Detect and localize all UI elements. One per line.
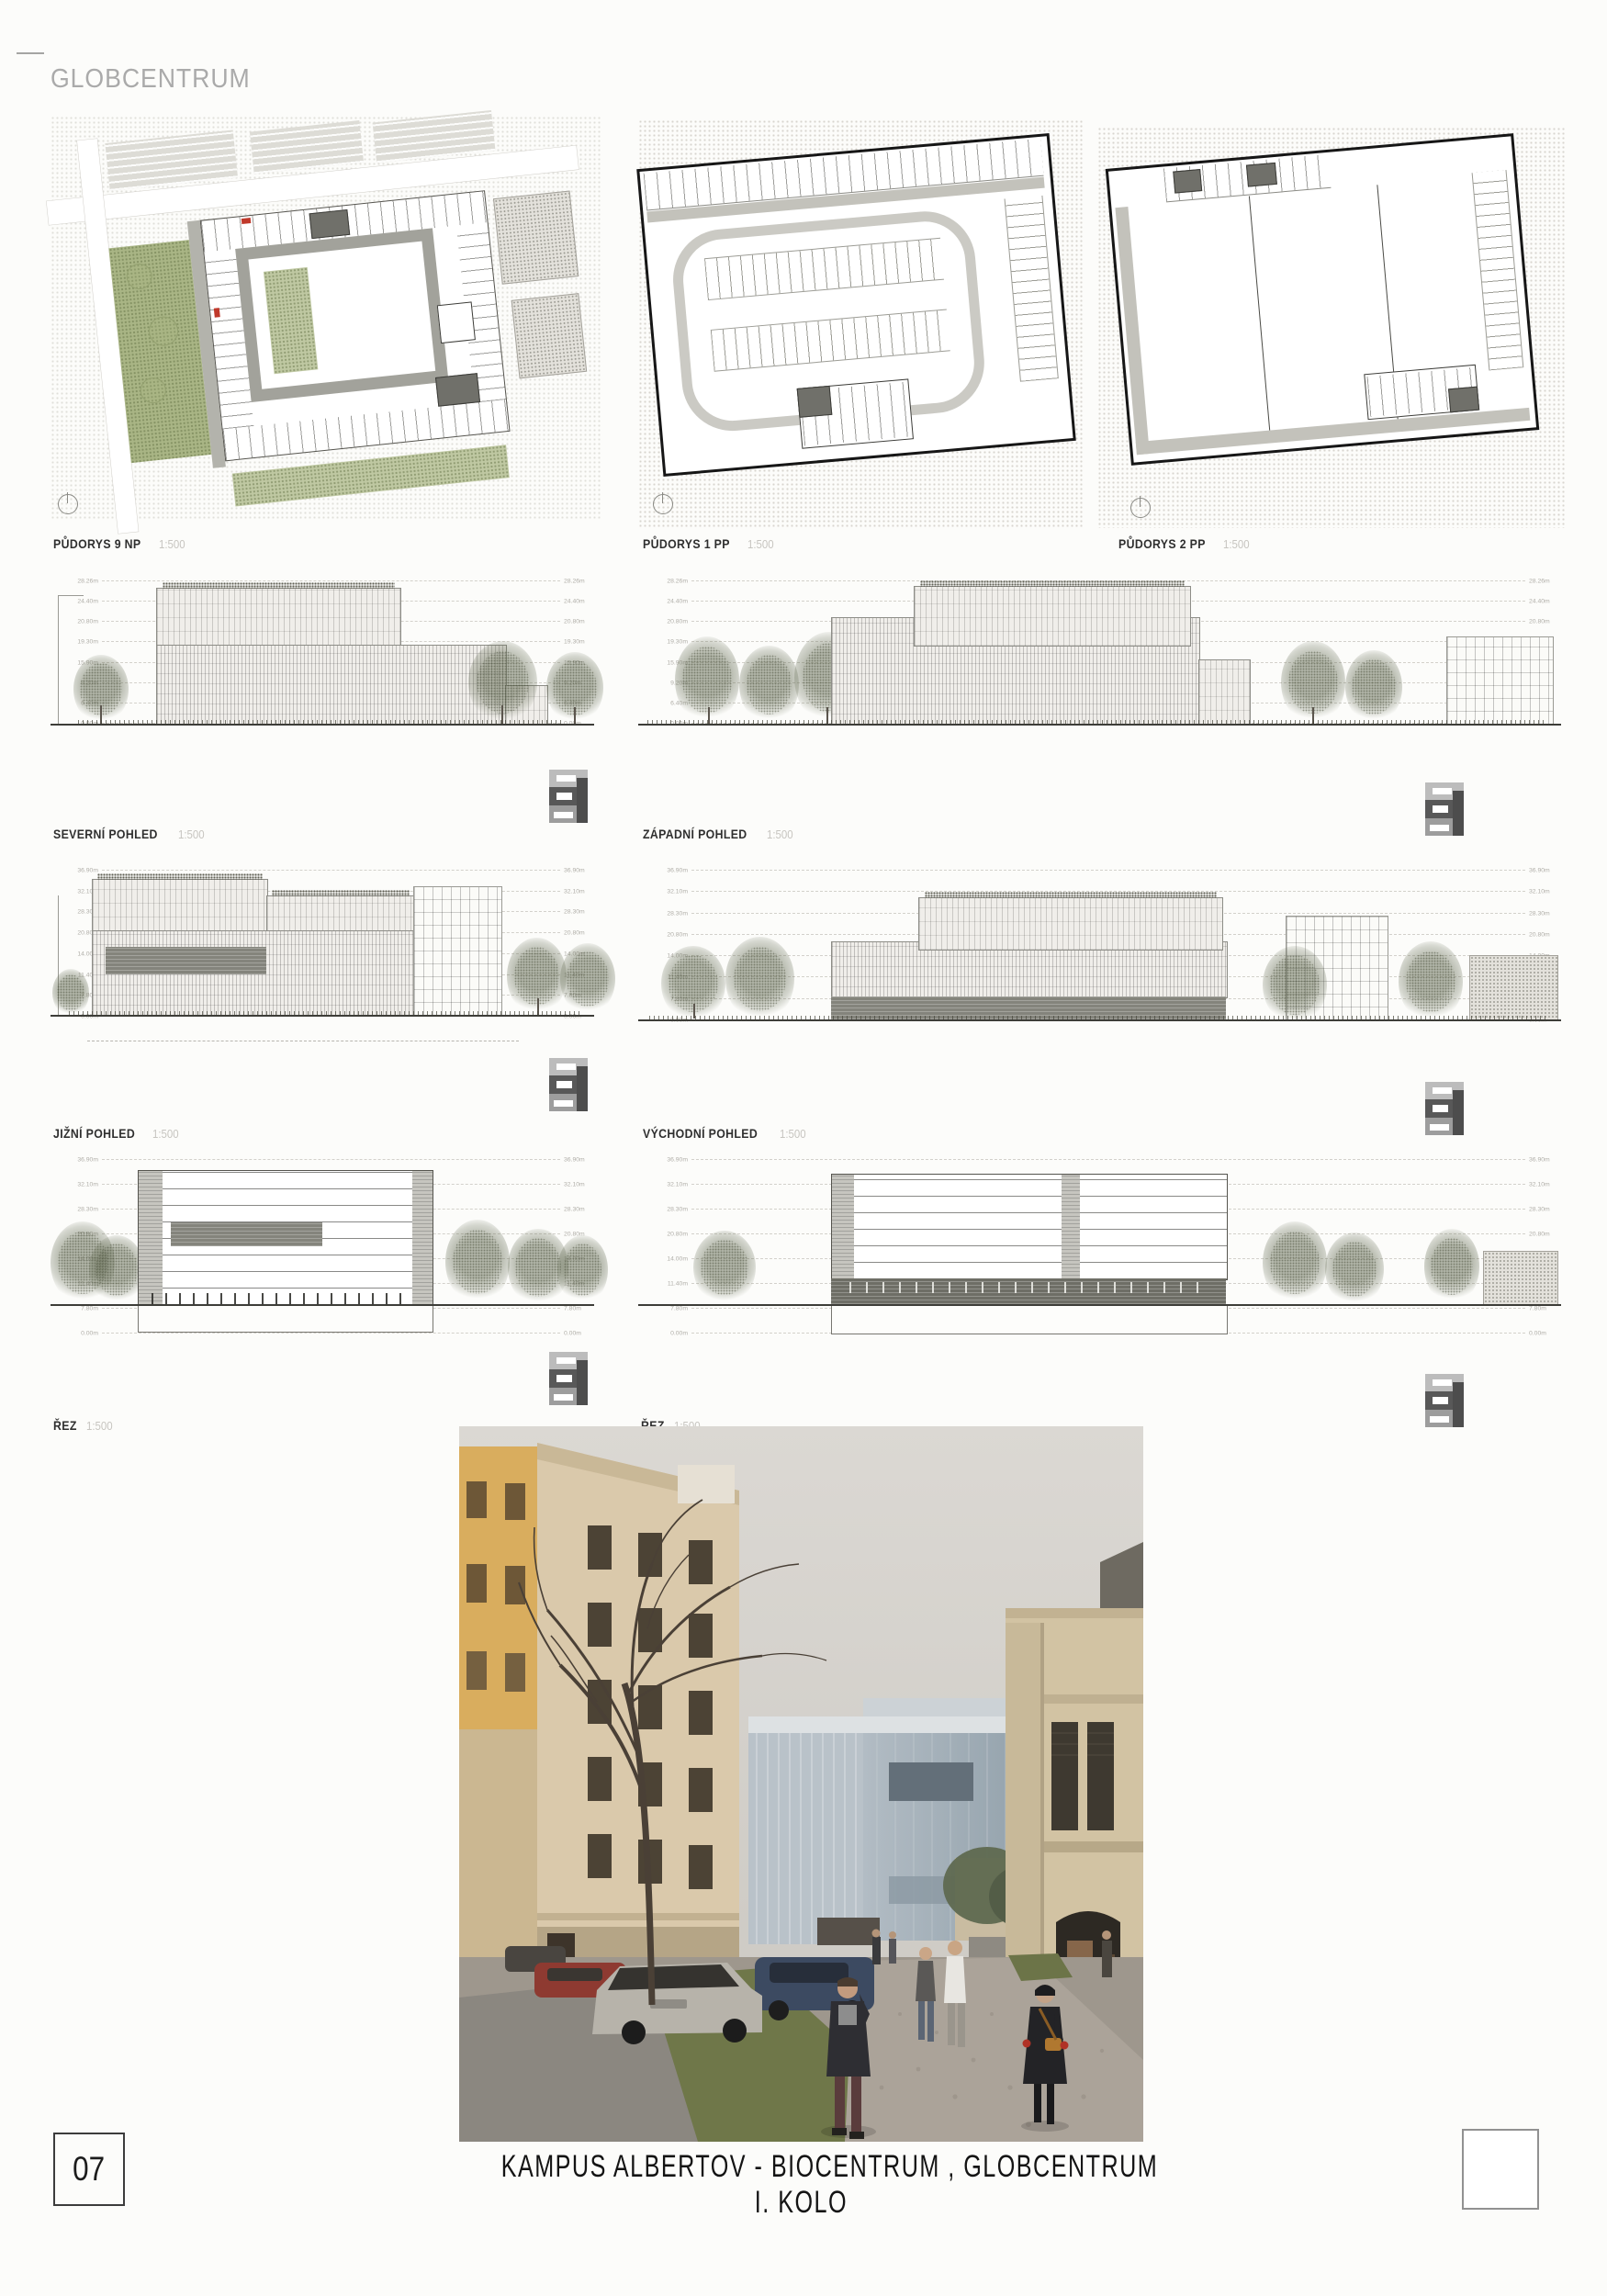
louver-band (106, 947, 266, 974)
board-caption: KAMPUS ALBERTOV - BIOCENTRUM , GLOBCENTR… (386, 2149, 1217, 2221)
tree (1325, 1232, 1384, 1306)
level-label: 0.00m (1529, 1330, 1556, 1337)
level-label: 36.90m (661, 1156, 688, 1164)
plan-9np-drawing (51, 116, 601, 529)
neighbor-hatched (511, 293, 588, 378)
core-cell (797, 386, 833, 418)
photo-montage (459, 1426, 1143, 2142)
parking-stalls-side (1005, 196, 1059, 382)
level-label: 20.80m (564, 929, 590, 937)
section-core (1062, 1175, 1080, 1279)
tree (693, 1231, 756, 1304)
level-label: 32.10m (1529, 888, 1556, 895)
neighbor-hatched (493, 191, 579, 285)
level-label: 36.90m (1529, 867, 1556, 874)
tree (89, 1235, 144, 1304)
section-core (412, 1171, 433, 1305)
panel-label-plan-1pp: PŮDORYS 1 PP 1:500 (643, 536, 778, 553)
facade-upper-right (266, 895, 415, 932)
neighbor-building (1446, 636, 1554, 726)
plan-1pp-drawing (638, 119, 1084, 528)
building-plan (200, 190, 511, 461)
page-number: 07 (73, 2150, 106, 2189)
level-label: 20.80m (72, 618, 98, 625)
level-label: 28.26m (1529, 578, 1556, 585)
caption-line-1: KAMPUS ALBERTOV - BIOCENTRUM , GLOBCENTR… (501, 2149, 1158, 2185)
level-label: 28.30m (661, 909, 688, 917)
basement-box (138, 1304, 433, 1333)
plan-2pp-drawing (1097, 127, 1566, 528)
core-cell (435, 373, 480, 407)
roof-planting (272, 890, 410, 896)
scale-text: 1:500 (152, 1127, 179, 1141)
level-label: 36.90m (72, 867, 98, 874)
scale-text: 1:500 (747, 537, 774, 551)
level-label: 19.30m (564, 638, 590, 646)
tree (1345, 650, 1402, 724)
scale-text: 1:500 (178, 827, 205, 841)
section-key-icon (549, 1058, 588, 1111)
entry-marker (242, 218, 252, 224)
basement-box (831, 1304, 1228, 1334)
section-body (138, 1170, 433, 1306)
label-text: PŮDORYS 9 NP (53, 536, 141, 551)
level-label: 0.00m (72, 1330, 98, 1337)
panel-label-elev-east: VÝCHODNÍ POHLED 1:500 (643, 1126, 809, 1142)
presentation-board: GLOBCENTRUM (0, 0, 1607, 2296)
level-label: 19.30m (661, 638, 688, 646)
level-label: 32.10m (564, 1181, 590, 1188)
tree (725, 937, 794, 1021)
level-label: 24.40m (1529, 598, 1556, 605)
facade-lower (156, 645, 507, 726)
core-cell (309, 209, 351, 239)
level-dash (102, 1333, 560, 1334)
level-label: 0.00m (564, 1330, 590, 1337)
level-label: 28.26m (661, 578, 688, 585)
plan-1pp-outline (636, 133, 1076, 477)
neighbor-hatched (1469, 955, 1558, 1021)
scale-text: 1:500 (86, 1419, 113, 1433)
level-label: 32.10m (661, 1181, 688, 1188)
level-label: 24.40m (661, 598, 688, 605)
level-dash (102, 580, 560, 581)
page-title: GLOBCENTRUM (51, 64, 251, 95)
panel-label-section-left: ŘEZ 1:500 (53, 1418, 116, 1435)
tree (1263, 946, 1327, 1024)
level-label: 32.10m (72, 1181, 98, 1188)
level-label: 28.26m (72, 578, 98, 585)
people-scale-figures (849, 1282, 1208, 1293)
roof-planting (163, 582, 395, 589)
ground-line (638, 1019, 1561, 1021)
level-dash (102, 1159, 560, 1160)
tree (675, 636, 739, 724)
level-line: 36.90m36.90m (67, 1155, 595, 1164)
tree (560, 943, 615, 1015)
neighbor-building (413, 886, 502, 1017)
level-label: 19.30m (72, 638, 98, 646)
neighbor-outline (58, 595, 59, 724)
ground-line (638, 1304, 1561, 1306)
neighbor-block (373, 110, 496, 163)
section-left-drawing: 36.90m36.90m32.10m32.10m28.30m28.30m20.8… (51, 1148, 597, 1451)
panel-label-plan-2pp: PŮDORYS 2 PP 1:500 (1118, 536, 1253, 553)
level-label: 20.80m (661, 618, 688, 625)
partition (1249, 196, 1270, 430)
corridor (1136, 408, 1531, 455)
caption-line-2: I. KOLO (755, 2185, 848, 2221)
tree (52, 969, 89, 1017)
page-number-box: 07 (53, 2133, 125, 2206)
ground-line (638, 724, 1561, 726)
neighbor-hatched (1483, 1251, 1558, 1306)
tree (1263, 1221, 1327, 1304)
level-label: 28.30m (661, 1206, 688, 1213)
elevation-south: 36.90m36.90m32.10m32.10m28.30m28.30m20.8… (51, 859, 597, 1139)
elevation-north: 28.26m28.26m24.40m24.40m20.80m20.80m19.3… (51, 568, 597, 843)
panel-label-elev-west: ZÁPADNÍ POHLED 1:500 (643, 827, 797, 843)
level-label: 20.80m (1529, 618, 1556, 625)
tree (739, 646, 799, 724)
north-mark-icon (653, 494, 673, 514)
label-text: SEVERNÍ POHLED (53, 827, 158, 841)
right-building (1006, 1542, 1143, 2023)
entry-marker (214, 308, 220, 318)
level-label: 20.80m (661, 931, 688, 939)
level-label: 0.00m (661, 1330, 688, 1337)
facade-upper (92, 879, 268, 932)
core-cell (1448, 387, 1479, 413)
tree (445, 1220, 510, 1304)
core-cell (1246, 163, 1277, 187)
label-text: ZÁPADNÍ POHLED (643, 827, 747, 841)
tree (1424, 1229, 1479, 1304)
level-line: 36.90m36.90m (657, 1155, 1560, 1164)
people-scale-figures (152, 1293, 409, 1304)
section-key-icon (1425, 1374, 1464, 1427)
corner-mark (17, 52, 44, 54)
section-key-icon (1425, 782, 1464, 836)
level-label: 28.30m (72, 1206, 98, 1213)
section-key-icon (1425, 1082, 1464, 1135)
level-label: 24.40m (72, 598, 98, 605)
level-dash (102, 870, 560, 871)
level-label: 36.90m (72, 1156, 98, 1164)
neighbor-block (105, 130, 238, 191)
scale-text: 1:500 (780, 1127, 806, 1141)
neighbor-block (250, 120, 364, 174)
level-label: 28.30m (564, 1206, 590, 1213)
neighbor-outline (58, 595, 84, 596)
panel-label-elev-north: SEVERNÍ POHLED 1:500 (53, 827, 208, 843)
north-mark-icon (1130, 498, 1151, 518)
section-core (832, 1175, 854, 1279)
scale-text: 1:500 (767, 827, 793, 841)
north-mark-icon (58, 494, 78, 514)
level-line: 36.90m36.90m (657, 866, 1560, 874)
label-text: PŮDORYS 2 PP (1118, 536, 1206, 551)
facade-upper (918, 897, 1223, 951)
level-label: 32.10m (1529, 1181, 1556, 1188)
tree-trunk (574, 707, 576, 726)
basement-line (87, 1041, 519, 1041)
facade-step (1198, 659, 1251, 726)
room-cell (437, 301, 476, 343)
ground-line (51, 1015, 594, 1017)
level-label: 36.90m (564, 867, 590, 874)
ground-line (51, 724, 594, 726)
roof-planting (97, 873, 263, 880)
plan-2pp-outline (1106, 133, 1540, 466)
section-body (831, 1174, 1228, 1280)
level-label: 20.80m (1529, 1231, 1556, 1238)
section-core (139, 1171, 163, 1305)
core-cell (1173, 169, 1202, 194)
hall-band (171, 1222, 322, 1246)
roof-planting (925, 892, 1217, 898)
corridor (1115, 207, 1149, 455)
level-label: 14.00m (661, 1255, 688, 1263)
level-dash (691, 870, 1525, 871)
level-label: 28.26m (564, 578, 590, 585)
level-label: 28.30m (564, 908, 590, 916)
level-label: 20.80m (564, 618, 590, 625)
scale-text: 1:500 (1223, 537, 1250, 551)
section-key-icon (549, 1352, 588, 1405)
level-label: 32.10m (564, 887, 590, 895)
scale-text: 1:500 (159, 537, 185, 551)
roof-planting (920, 580, 1185, 587)
panel-label-plan-9np: PŮDORYS 9 NP 1:500 (53, 536, 189, 553)
ground-line (51, 1304, 594, 1306)
label-text: JIŽNÍ POHLED (53, 1126, 135, 1141)
level-label: 28.30m (1529, 1206, 1556, 1213)
label-text: ŘEZ (53, 1418, 77, 1433)
level-label: 11.40m (661, 1280, 688, 1288)
panel-label-elev-south: JIŽNÍ POHLED 1:500 (53, 1126, 182, 1142)
tree (1399, 941, 1463, 1022)
facade-upper (914, 586, 1191, 647)
level-label: 20.80m (1529, 931, 1556, 939)
level-dash (691, 1159, 1525, 1160)
level-label: 32.10m (661, 888, 688, 895)
empty-corner-box (1462, 2129, 1539, 2210)
site-plan-group (40, 89, 612, 537)
level-label: 20.80m (661, 1231, 688, 1238)
label-text: PŮDORYS 1 PP (643, 536, 730, 551)
tree (557, 1235, 608, 1304)
level-label: 36.90m (564, 1156, 590, 1164)
label-text: VÝCHODNÍ POHLED (643, 1126, 758, 1141)
level-label: 36.90m (661, 867, 688, 874)
level-label: 24.40m (564, 598, 590, 605)
left-building (459, 1443, 739, 2014)
facade-upper (156, 588, 401, 647)
level-label: 36.90m (1529, 1156, 1556, 1164)
parking-stalls-side (1472, 170, 1524, 370)
section-key-icon (549, 770, 588, 823)
level-label: 28.30m (1529, 909, 1556, 917)
